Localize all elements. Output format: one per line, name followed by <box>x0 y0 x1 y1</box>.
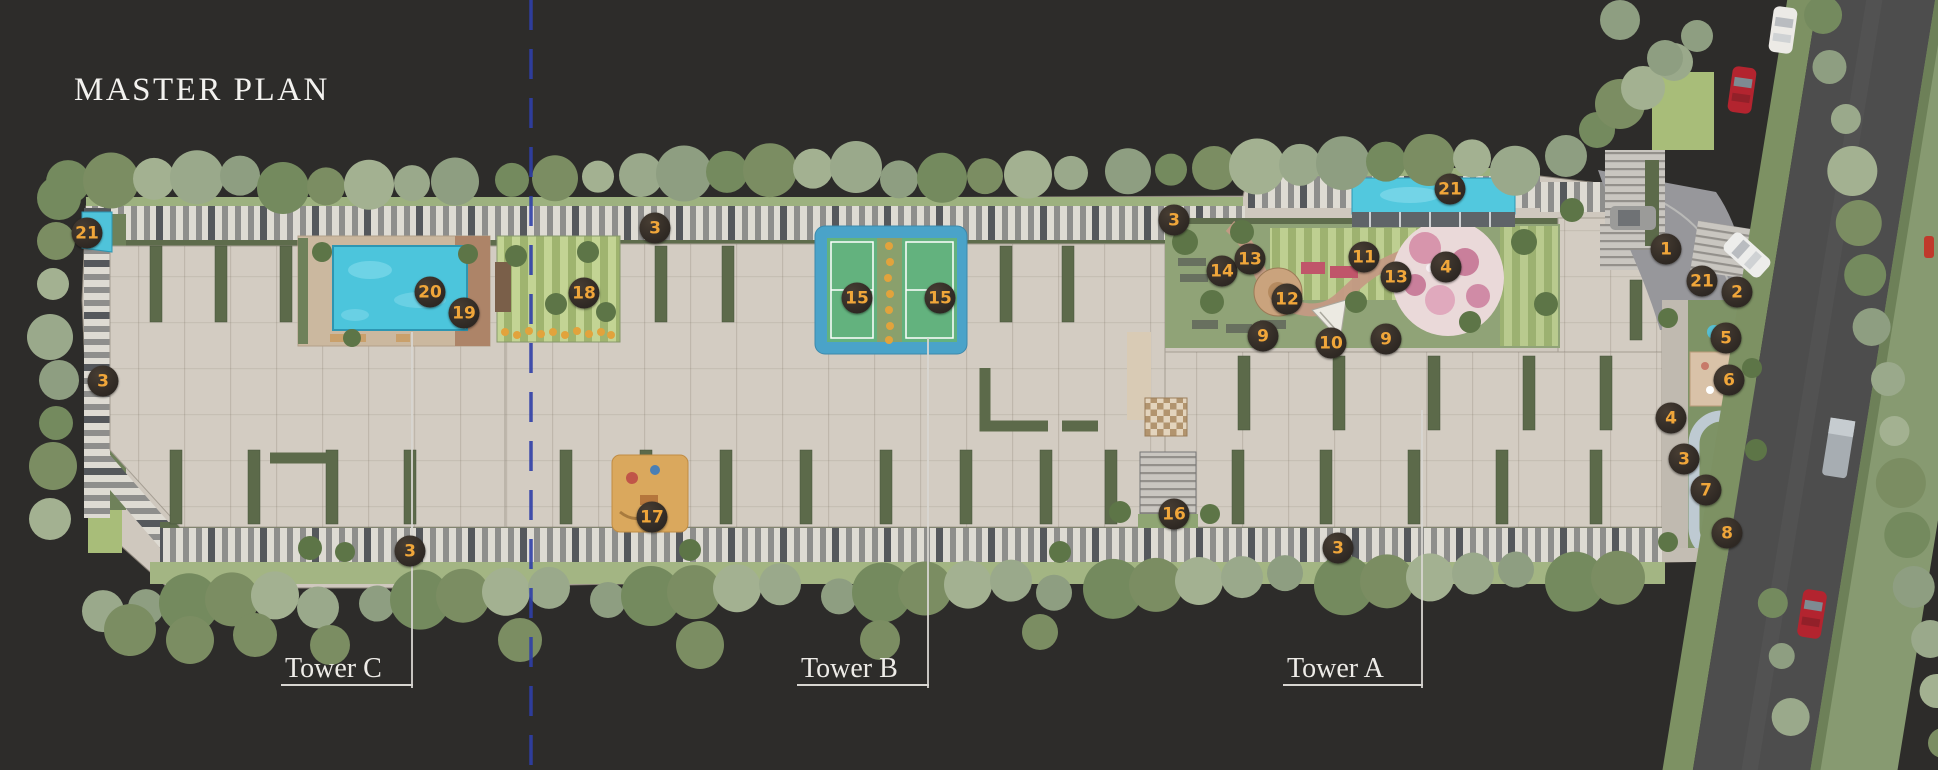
amenity-marker-4[interactable]: 4 <box>1656 403 1687 434</box>
amenity-marker-15[interactable]: 15 <box>842 283 873 314</box>
amenity-marker-3[interactable]: 3 <box>88 366 119 397</box>
amenity-marker-12[interactable]: 12 <box>1272 284 1303 315</box>
amenity-marker-1[interactable]: 1 <box>1651 234 1682 265</box>
amenity-marker-10[interactable]: 10 <box>1316 328 1347 359</box>
amenity-marker-21[interactable]: 21 <box>72 218 103 249</box>
tower-b-label: Tower B <box>797 652 929 686</box>
amenity-marker-15[interactable]: 15 <box>925 283 956 314</box>
amenity-marker-6[interactable]: 6 <box>1714 365 1745 396</box>
amenity-marker-21[interactable]: 21 <box>1687 266 1718 297</box>
master-plan-canvas: MASTER PLAN Tower C Tower B Tower A 2132… <box>0 0 1938 770</box>
amenity-marker-3[interactable]: 3 <box>1323 533 1354 564</box>
amenity-marker-7[interactable]: 7 <box>1691 475 1722 506</box>
page-title: MASTER PLAN <box>74 72 330 109</box>
amenity-marker-5[interactable]: 5 <box>1711 323 1742 354</box>
amenity-marker-3[interactable]: 3 <box>640 213 671 244</box>
amenity-marker-16[interactable]: 16 <box>1159 499 1190 530</box>
amenity-marker-17[interactable]: 17 <box>637 502 668 533</box>
amenity-marker-8[interactable]: 8 <box>1712 518 1743 549</box>
amenity-marker-2[interactable]: 2 <box>1722 277 1753 308</box>
amenity-marker-13[interactable]: 13 <box>1381 262 1412 293</box>
amenity-marker-3[interactable]: 3 <box>395 536 426 567</box>
amenity-marker-19[interactable]: 19 <box>449 298 480 329</box>
amenity-marker-18[interactable]: 18 <box>569 278 600 309</box>
amenity-marker-14[interactable]: 14 <box>1207 256 1238 287</box>
amenity-marker-9[interactable]: 9 <box>1371 324 1402 355</box>
amenity-marker-4[interactable]: 4 <box>1431 252 1462 283</box>
amenity-marker-9[interactable]: 9 <box>1248 321 1279 352</box>
amenity-marker-20[interactable]: 20 <box>415 277 446 308</box>
amenity-marker-11[interactable]: 11 <box>1349 242 1380 273</box>
amenity-marker-13[interactable]: 13 <box>1235 244 1266 275</box>
amenity-marker-3[interactable]: 3 <box>1669 444 1700 475</box>
tower-c-label: Tower C <box>281 652 413 686</box>
amenity-marker-21[interactable]: 21 <box>1435 174 1466 205</box>
tower-a-label: Tower A <box>1283 652 1423 686</box>
amenity-marker-3[interactable]: 3 <box>1159 205 1190 236</box>
